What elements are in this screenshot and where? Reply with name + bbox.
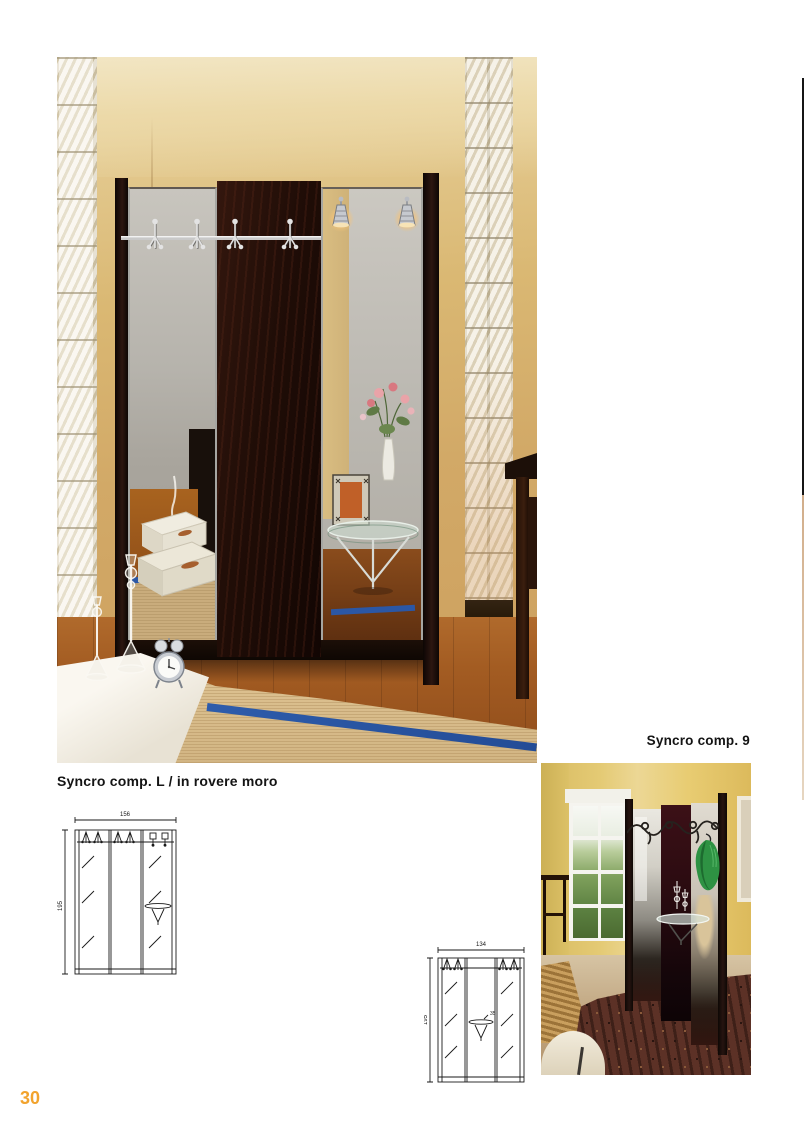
halogen-lamps [325, 195, 429, 239]
page-edge-mark-black [802, 78, 804, 495]
alarm-clock [147, 637, 191, 691]
side-table-shelf [528, 497, 537, 589]
rug-reflection [691, 992, 718, 1045]
diagram-comp-l-width-label: 156 [120, 812, 131, 818]
main-photo-syncro-comp-l [57, 57, 537, 763]
unit-post-right [423, 173, 439, 685]
caption-comp-l: Syncro comp. L / in rovere moro [57, 773, 278, 789]
catalog-page: Syncro comp. L / in rovere moro Syncro c… [0, 0, 808, 1134]
diagram-comp-9-height-label: 195 [424, 1014, 429, 1025]
diagram-comp-9-shelf-label: 35 [490, 1011, 496, 1017]
rug-reflection [633, 959, 661, 1001]
coat-rail-and-hooks [121, 217, 321, 257]
window-beam [565, 789, 631, 803]
page-number: 30 [20, 1088, 40, 1109]
glass-table-with-flowers-reflection [323, 377, 423, 639]
diagram-comp-l: 156 195 [55, 806, 185, 978]
diagram-comp-9-width-label: 134 [476, 942, 487, 948]
caption-comp-9: Syncro comp. 9 [538, 733, 750, 748]
secondary-photo-syncro-comp-9 [541, 763, 751, 1075]
mirror-panel-right [321, 187, 423, 640]
page-edge-mark-tan [802, 495, 804, 800]
window [569, 803, 627, 941]
diagram-comp-l-height-label: 195 [58, 900, 64, 911]
glass-block-wall-right [465, 57, 513, 600]
diagram-comp-9: 134 195 35 [424, 936, 536, 1088]
glass-shelf-with-candlesticks [655, 879, 713, 953]
wall-picture-frame [737, 796, 751, 902]
